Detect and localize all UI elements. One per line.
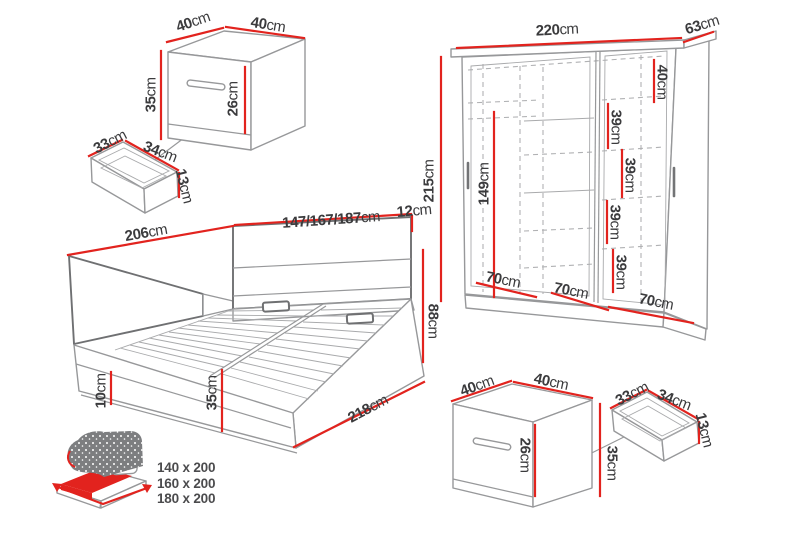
dim-bed-total-height: 88cm: [426, 304, 441, 339]
dim-wardrobe-shelf-2: 39cm: [623, 158, 638, 193]
bed-lift-latch: [263, 301, 289, 311]
dim-nightstand-top-front: 26cm: [226, 82, 241, 117]
dim-wardrobe-shelf-1: 39cm: [609, 110, 624, 145]
nightstand-bottom-right-drawing: [452, 381, 634, 507]
dim-wardrobe-height: 215cm: [422, 160, 437, 203]
dim-nightstand-bottom-height: 35cm: [605, 446, 620, 481]
dim-wardrobe-shelf-3: 39cm: [608, 205, 623, 240]
dim-nightstand-top-height: 35cm: [144, 78, 159, 113]
legend-size-option: 180 x 200: [157, 491, 215, 507]
dim-wardrobe-top-section: 40cm: [655, 65, 670, 100]
dim-wardrobe-inner-height: 149cm: [477, 163, 492, 206]
dim-wardrobe-width: 220cm: [535, 21, 578, 38]
diagram-canvas: [0, 0, 800, 533]
dim-wardrobe-shelf-4: 39cm: [614, 255, 629, 290]
legend-bed-icon: [52, 431, 152, 508]
dim-bed-frame-height: 35cm: [205, 376, 220, 411]
bed-lift-latch: [347, 313, 373, 323]
dim-nightstand-bottom-front: 26cm: [518, 438, 533, 473]
legend-size-option: 160 x 200: [157, 476, 215, 492]
legend-mattress-sizes: 140 x 200 160 x 200 180 x 200: [157, 460, 215, 507]
dim-bed-headboard-depth: 12cm: [396, 202, 432, 220]
dim-bed-plinth-height: 10cm: [94, 374, 109, 409]
legend-size-option: 140 x 200: [157, 460, 215, 476]
furniture-dimension-diagram: 40cm 40cm 35cm 26cm 33cm 34cm 13cm 220cm…: [0, 0, 800, 533]
